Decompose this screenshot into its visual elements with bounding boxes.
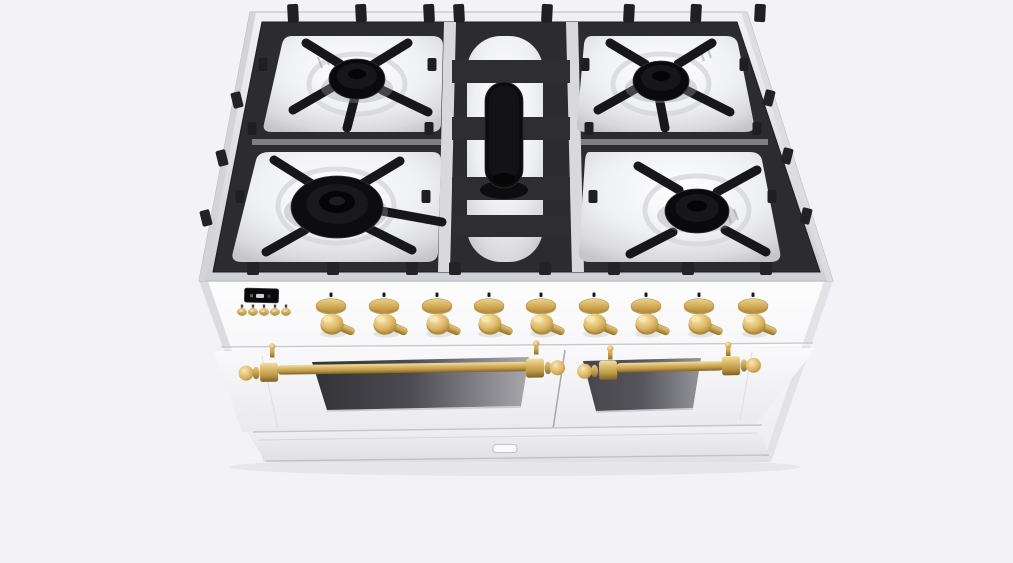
knob-grip bbox=[374, 314, 397, 333]
knob-bezel bbox=[369, 299, 399, 313]
knob-bezel bbox=[526, 299, 556, 313]
knob-grip bbox=[636, 314, 659, 333]
knob-bezel bbox=[474, 299, 504, 313]
knob-indicator bbox=[540, 293, 543, 298]
post-cap bbox=[725, 342, 731, 348]
handle-collar bbox=[260, 363, 278, 382]
knob-grip bbox=[321, 314, 344, 333]
kick-panel bbox=[247, 425, 769, 462]
knob-grip bbox=[689, 314, 712, 333]
button-icon bbox=[252, 305, 254, 308]
knob-indicator bbox=[752, 293, 755, 298]
knob-grip bbox=[743, 314, 766, 333]
post-cap bbox=[607, 345, 613, 351]
button-icon bbox=[241, 305, 243, 308]
range-product-image bbox=[0, 0, 1013, 563]
product-render-stage bbox=[0, 0, 1013, 563]
knob-bezel bbox=[579, 299, 609, 313]
cooktop bbox=[199, 4, 833, 281]
display-glyph bbox=[250, 294, 253, 297]
display-glyph bbox=[256, 294, 264, 298]
post-cap bbox=[533, 340, 539, 346]
handle-collar bbox=[722, 356, 740, 375]
clock-timer-display bbox=[244, 288, 278, 303]
knob-indicator bbox=[488, 293, 491, 298]
knob-bezel bbox=[422, 299, 452, 313]
knob-indicator bbox=[645, 293, 648, 298]
drawer-latch[interactable] bbox=[493, 445, 517, 453]
handle-collar bbox=[599, 361, 617, 380]
knob-grip bbox=[479, 314, 502, 333]
knob-indicator bbox=[593, 293, 596, 298]
well-gap bbox=[252, 139, 443, 145]
handle-collar bbox=[526, 358, 544, 377]
knob-grip bbox=[427, 314, 450, 333]
button-icon bbox=[263, 305, 265, 308]
knob-grip bbox=[584, 314, 607, 333]
knob-indicator bbox=[698, 293, 701, 298]
knob-indicator bbox=[383, 293, 386, 298]
button-icon bbox=[274, 305, 276, 308]
knob-bezel bbox=[316, 299, 346, 313]
knob-bezel bbox=[684, 299, 714, 313]
knob-bezel bbox=[738, 299, 768, 313]
post-cap bbox=[269, 343, 275, 349]
display-glyph bbox=[267, 295, 270, 298]
knob-indicator bbox=[330, 293, 333, 298]
button-icon bbox=[285, 305, 287, 308]
knob-grip bbox=[531, 314, 554, 333]
knob-bezel bbox=[631, 299, 661, 313]
well-gap bbox=[580, 139, 768, 145]
knob-indicator bbox=[436, 293, 439, 298]
